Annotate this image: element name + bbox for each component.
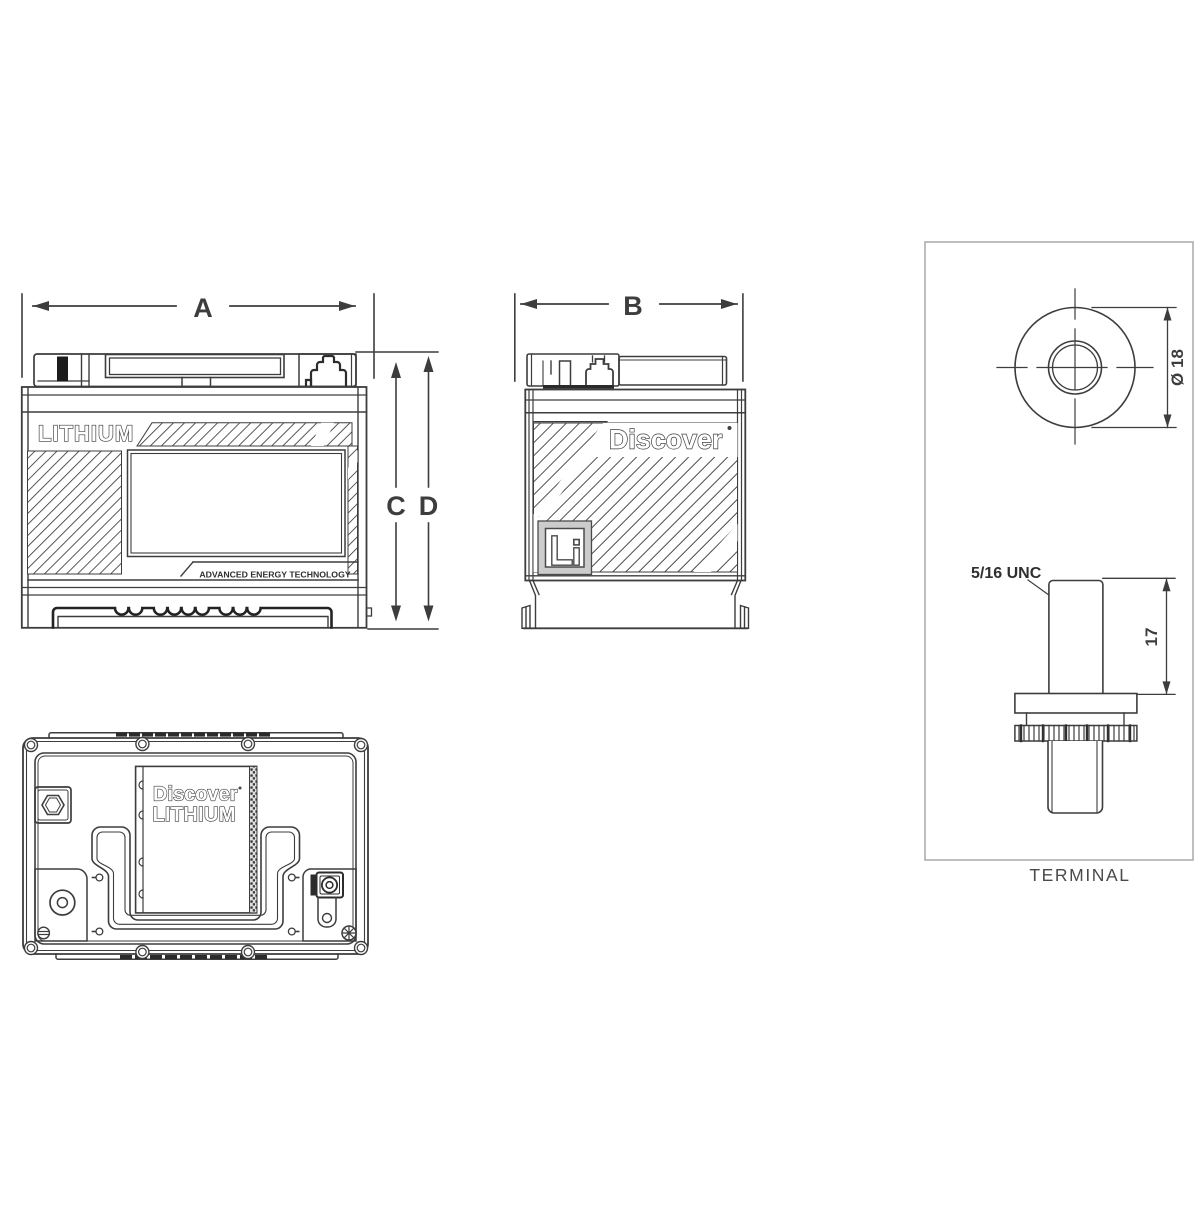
svg-text:17: 17 [1142,628,1161,647]
svg-text:Discover: Discover [153,784,238,806]
svg-text:LITHIUM: LITHIUM [153,804,236,826]
svg-text:D: D [419,491,439,521]
svg-text:A: A [193,293,213,323]
svg-text:Ø 18: Ø 18 [1168,349,1187,386]
svg-text:C: C [386,491,406,521]
svg-text:ADVANCED ENERGY TECHNOLOGY: ADVANCED ENERGY TECHNOLOGY [199,570,350,580]
svg-text:TERMINAL: TERMINAL [1029,865,1130,885]
svg-text:Discover: Discover [609,425,723,455]
svg-text:B: B [623,291,643,321]
svg-text:LITHIUM: LITHIUM [38,421,134,446]
svg-text:5/16 UNC: 5/16 UNC [971,565,1042,582]
